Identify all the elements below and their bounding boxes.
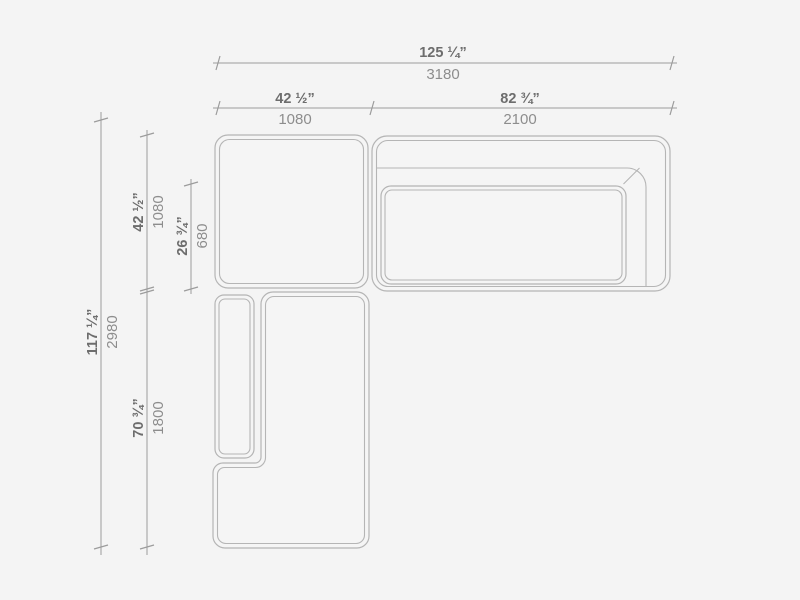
dim-label-left-width-inches: 42 ½” — [275, 91, 315, 107]
dim-label-right-width-inches: 82 ¾” — [500, 91, 540, 107]
dim-label-right-width-mm: 2100 — [503, 111, 536, 128]
dim-label-top-module-depth-inches: 42 ½” — [131, 192, 147, 232]
corner-module-outline — [215, 135, 368, 288]
dim-label-overall-depth-inches: 117 ¼” — [85, 309, 101, 356]
dim-label-seat-depth-mm: 680 — [194, 223, 211, 248]
sofa-plan — [213, 135, 670, 548]
dim-label-top-module-depth-mm: 1080 — [150, 195, 167, 228]
dim-label-overall-depth-mm: 2980 — [104, 315, 121, 348]
dim-label-overall-width-mm: 3180 — [426, 66, 459, 83]
dim-label-seat-depth-inches: 26 ¾” — [175, 216, 191, 256]
dimension-lines — [94, 56, 677, 555]
dim-label-chaise-depth-inches: 70 ¾” — [131, 398, 147, 438]
chaise-armrest-cushion — [215, 295, 254, 458]
dim-label-overall-width-inches: 125 ¼” — [419, 45, 467, 61]
sofa-seat-cushion — [381, 186, 626, 284]
sofa-dimension-drawing: 125 ¼” 3180 42 ½” 1080 82 ¾” 2100 117 ¼”… — [0, 0, 800, 600]
dim-label-chaise-depth-mm: 1800 — [150, 401, 167, 434]
dim-label-left-width-mm: 1080 — [278, 111, 311, 128]
